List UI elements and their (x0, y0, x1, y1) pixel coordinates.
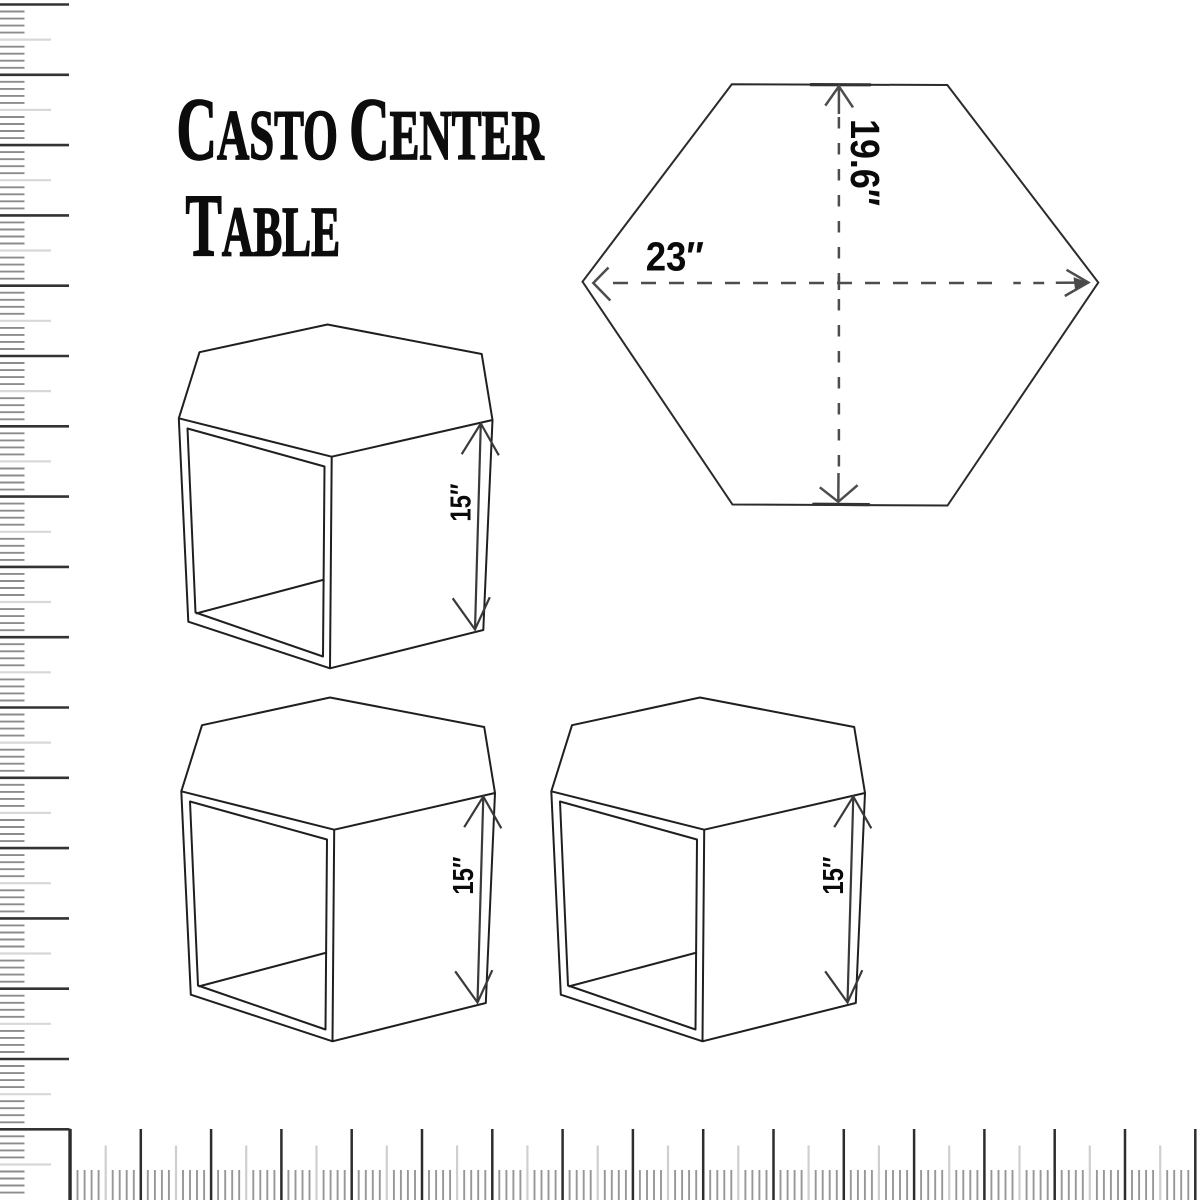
svg-text:CASTO CENTER: CASTO CENTER (177, 81, 545, 179)
svg-text:19.6″: 19.6″ (842, 119, 888, 206)
svg-text:23″: 23″ (646, 234, 704, 280)
